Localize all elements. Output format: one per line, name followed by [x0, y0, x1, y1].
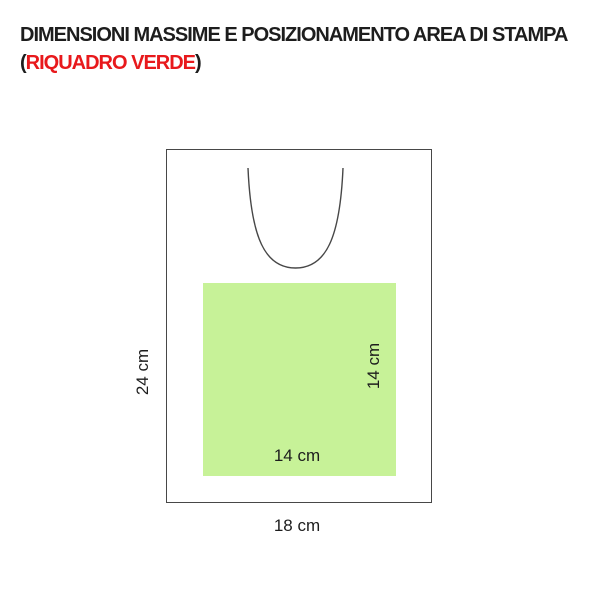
print-area-spec-diagram: DIMENSIONI MASSIME E POSIZIONAMENTO AREA… — [0, 0, 600, 600]
title-line2: (RIQUADRO VERDE) — [20, 49, 567, 77]
title-paren-close: ) — [195, 52, 201, 74]
print-area-height-label: 14 cm — [364, 343, 384, 389]
product-height-label: 24 cm — [133, 349, 153, 395]
title-highlight: RIQUADRO VERDE — [26, 52, 195, 74]
page-title: DIMENSIONI MASSIME E POSIZIONAMENTO AREA… — [20, 21, 567, 77]
product-width-label: 18 cm — [274, 516, 320, 536]
print-area-width-label: 14 cm — [274, 446, 320, 466]
title-line1: DIMENSIONI MASSIME E POSIZIONAMENTO AREA… — [20, 21, 567, 49]
